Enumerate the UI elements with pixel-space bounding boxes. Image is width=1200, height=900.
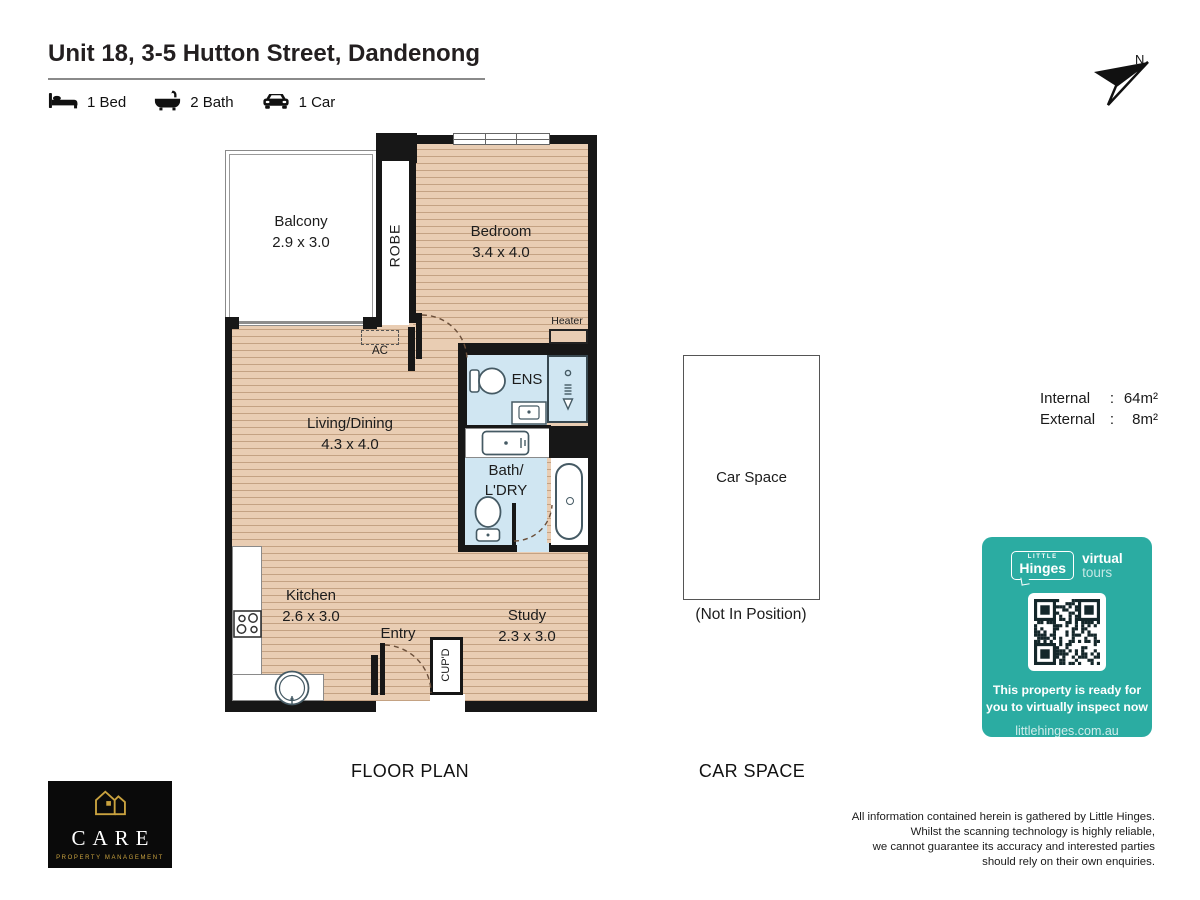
feature-car-label: 1 Car (299, 94, 336, 111)
disclaimer-text: All information contained herein is gath… (760, 810, 1155, 870)
wall (225, 319, 232, 712)
feature-summary: 1 Bed 2 Bath (48, 90, 335, 114)
ac-unit (361, 330, 399, 345)
car-icon (262, 91, 290, 114)
bath-toilet-icon (473, 495, 503, 543)
feature-car: 1 Car (262, 91, 336, 114)
bath-door (512, 503, 516, 545)
bathtub-drain (566, 497, 574, 505)
agency-name: CARE (48, 826, 172, 851)
floorplan-caption: FLOOR PLAN (327, 761, 493, 782)
kitchen-label: Kitchen 2.6 x 3.0 (265, 585, 357, 627)
floorplan-drawing: Balcony 2.9 x 3.0 ROBE Bedroom 3.4 x 4.0… (225, 133, 597, 723)
external-area-row: External : 8m² (1040, 411, 1158, 428)
stove-icon (233, 610, 262, 638)
little-hinges-logo: LITTLE Hinges virtual tours (982, 551, 1152, 580)
north-arrow: N (1086, 50, 1156, 110)
cupboard-label: CUP'D (440, 640, 452, 690)
bed-icon (48, 91, 78, 114)
wall (460, 343, 597, 355)
house-icon (48, 788, 172, 821)
entry-label: Entry (367, 623, 429, 644)
floorplan-page: Unit 18, 3-5 Hutton Street, Dandenong 1 … (0, 0, 1200, 900)
ens-vanity-icon (511, 401, 547, 425)
entry-opening (376, 701, 430, 712)
robe-label: ROBE (385, 206, 406, 286)
study-label: Study 2.3 x 3.0 (477, 605, 577, 647)
bath-icon (154, 90, 181, 115)
balcony-label: Balcony 2.9 x 3.0 (225, 211, 377, 253)
wall (409, 161, 416, 323)
qr-code (1028, 593, 1106, 671)
entry-door (380, 643, 385, 695)
badge-url: littlehinges.com.au (982, 724, 1152, 738)
carspace-note: (Not In Position) (651, 606, 851, 624)
virtual-tours-wordmark: virtual tours (1082, 552, 1123, 580)
carspace-label: Car Space (716, 469, 787, 486)
agency-logo: CARE PROPERTY MANAGEMENT (48, 781, 172, 868)
shower-head-icon (561, 367, 575, 413)
feature-bath-label: 2 Bath (190, 94, 233, 111)
bedroom-window (453, 133, 550, 145)
agency-tagline: PROPERTY MANAGEMENT (48, 855, 172, 861)
ac-label: AC (361, 345, 399, 357)
wall (588, 135, 597, 712)
sliding-door (239, 321, 363, 324)
living-label: Living/Dining 4.3 x 4.0 (265, 413, 435, 455)
carspace-caption: CAR SPACE (669, 761, 835, 782)
badge-message: This property is ready for you to virtua… (982, 682, 1152, 716)
wall (549, 426, 588, 458)
kitchen-sink-icon (273, 670, 311, 708)
bath-door-opening (517, 543, 549, 552)
heater-label: Heater (539, 315, 595, 327)
internal-area-row: Internal : 64m² (1040, 390, 1158, 407)
page-title: Unit 18, 3-5 Hutton Street, Dandenong (48, 40, 485, 80)
cupboard-opening (430, 694, 465, 712)
heater-unit (549, 329, 588, 344)
bedroom-door (416, 313, 422, 359)
wall (363, 317, 377, 329)
feature-bed: 1 Bed (48, 91, 126, 114)
north-label: N (1135, 52, 1144, 67)
feature-bed-label: 1 Bed (87, 94, 126, 111)
wall (371, 655, 378, 695)
speech-bubble-icon: LITTLE Hinges (1011, 551, 1074, 580)
ens-label: ENS (507, 369, 547, 390)
virtual-tour-badge: LITTLE Hinges virtual tours This propert… (982, 537, 1152, 737)
ens-toilet-icon (469, 365, 509, 397)
area-summary: Internal : 64m² External : 8m² (1040, 390, 1158, 432)
feature-bath: 2 Bath (154, 90, 233, 115)
wall (408, 327, 415, 371)
bedroom-label: Bedroom 3.4 x 4.0 (421, 221, 581, 263)
carspace-rect: Car Space (683, 355, 820, 600)
laundry-trough-icon (481, 430, 533, 457)
